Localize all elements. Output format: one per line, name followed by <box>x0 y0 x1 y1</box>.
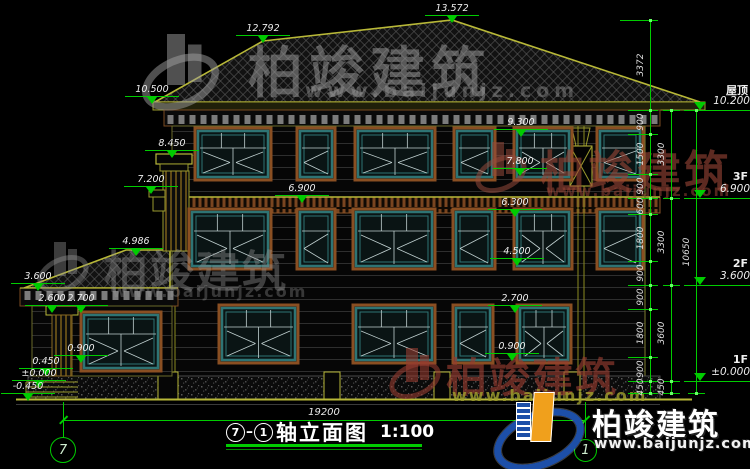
floor-level-line <box>684 110 750 111</box>
dimension-value: 3300 <box>657 220 667 264</box>
elevation-marker-triangle-icon <box>510 210 520 217</box>
elevation-marker: 7.200 <box>120 175 182 194</box>
elevation-marker-triangle-icon <box>23 394 33 401</box>
drawing-title: 7 – 1 轴立面图 1:100 <box>226 419 434 445</box>
dim-tick-dot <box>649 213 652 216</box>
elevation-marker-triangle-icon <box>510 306 520 313</box>
brand-logo: 柏竣建筑 www.baijunjz.com <box>490 388 750 468</box>
dimension-value: 3600 <box>657 311 667 355</box>
dim-tick-dot <box>649 173 652 176</box>
elevation-marker: 10.500 <box>121 85 183 104</box>
title-axis-start-bubble: 7 <box>226 423 245 442</box>
elevation-marker-triangle-icon <box>147 97 157 104</box>
elevation-marker-triangle-icon <box>447 16 457 23</box>
elevation-value: 8.450 <box>141 139 203 149</box>
elevation-marker-triangle-icon <box>76 306 86 313</box>
title-underline <box>226 444 422 447</box>
elevation-value: -0.450 <box>0 382 59 392</box>
dim-tick-dot <box>649 133 652 136</box>
dim-tick-dot <box>649 284 652 287</box>
elevation-value: 0.900 <box>481 342 543 352</box>
dim-tick-dot <box>649 19 652 22</box>
dim-tick-dot <box>649 109 652 112</box>
elevation-value: 0.450 <box>15 357 77 367</box>
logo-building-icon <box>530 392 554 442</box>
elevation-value: 10.500 <box>121 85 183 95</box>
elevation-marker: 4.500 <box>486 247 548 266</box>
dimension-value: 10650 <box>682 230 692 274</box>
elevation-value: 9.300 <box>490 118 552 128</box>
dim-line-inner <box>650 20 651 393</box>
elevation-marker-triangle-icon <box>512 259 522 266</box>
elevation-marker-triangle-icon <box>515 169 525 176</box>
elevation-value: 13.572 <box>421 4 483 14</box>
elevation-value: ±0.000 <box>8 369 70 379</box>
elevation-value: 3.600 <box>7 272 69 282</box>
elevation-marker-triangle-icon <box>516 130 526 137</box>
elevation-marker-triangle-icon <box>146 187 156 194</box>
cad-elevation-drawing: 柏竣建筑 www.baijunjz.com 柏竣建筑 www.baijunjz.… <box>0 0 750 469</box>
dim-tick-dot <box>649 356 652 359</box>
elevation-marker-triangle-icon <box>167 151 177 158</box>
dim-line-middle <box>671 110 672 393</box>
floor-name: 3F <box>700 170 748 183</box>
title-scale: 1:100 <box>380 422 434 442</box>
floor-elevation: ±0.000 <box>696 366 750 378</box>
elevation-value: 7.800 <box>489 157 551 167</box>
floor-level-line <box>684 381 750 382</box>
elevation-value: 4.500 <box>486 247 548 257</box>
dim-tick-dot <box>670 284 673 287</box>
dimension-value: 3372 <box>636 43 646 87</box>
elevation-value: 12.792 <box>232 24 294 34</box>
floor-level-line <box>684 285 750 286</box>
title-text: 轴立面图 <box>276 417 368 447</box>
elevation-value: 2.700 <box>50 294 112 304</box>
floor-name: 2F <box>700 257 748 270</box>
title-underline <box>226 449 422 450</box>
elevation-marker: 2.700 <box>484 294 546 313</box>
title-dash: – <box>246 424 253 440</box>
elevation-value: 7.200 <box>120 175 182 185</box>
floor-level-line <box>684 198 750 199</box>
elevation-marker-triangle-icon <box>258 36 268 43</box>
elevation-marker-triangle-icon <box>297 196 307 203</box>
floor-elevation: 6.900 <box>696 183 750 195</box>
dim-tick-dot <box>670 380 673 383</box>
elevation-value: 6.900 <box>271 184 333 194</box>
dim-tick-dot <box>670 197 673 200</box>
dim-tick-dot <box>649 308 652 311</box>
elevation-marker-triangle-icon <box>131 249 141 256</box>
dim-tick-dot <box>649 380 652 383</box>
elevation-value: 6.300 <box>484 198 546 208</box>
elevation-marker-triangle-icon <box>33 284 43 291</box>
elevation-value: 2.700 <box>484 294 546 304</box>
elevation-marker: 6.900 <box>271 184 333 203</box>
elevation-value: 0.900 <box>50 344 112 354</box>
dim-tick <box>620 20 658 21</box>
logo-building-icon <box>516 402 531 440</box>
floor-name: 1F <box>700 353 748 366</box>
dim-line-outer <box>696 110 697 393</box>
dim-tick-dot <box>649 197 652 200</box>
elevation-marker: 2.700 <box>50 294 112 313</box>
elevation-marker: 7.800 <box>489 157 551 176</box>
brand-website: www.baijunjz.com <box>594 436 750 452</box>
dimension-value: 3300 <box>657 132 667 176</box>
elevation-marker: 12.792 <box>232 24 294 43</box>
elevation-marker-triangle-icon <box>76 356 86 363</box>
elevation-marker: 0.900 <box>481 342 543 361</box>
axis-bubble-7: 7 <box>50 437 76 463</box>
floor-elevation: 10.200 <box>696 95 750 107</box>
elevation-value: 4.986 <box>105 237 167 247</box>
elevation-marker-triangle-icon <box>507 354 517 361</box>
dim-tick-dot <box>649 260 652 263</box>
elevation-marker: 6.300 <box>484 198 546 217</box>
elevation-marker: 9.300 <box>490 118 552 137</box>
title-axis-end-bubble: 1 <box>254 423 273 442</box>
elevation-marker: 4.986 <box>105 237 167 256</box>
dim-tick-dot <box>670 109 673 112</box>
elevation-marker: 3.600 <box>7 272 69 291</box>
elevation-marker: 13.572 <box>421 4 483 23</box>
elevation-marker: 8.450 <box>141 139 203 158</box>
elevation-marker: -0.450 <box>0 382 59 401</box>
floor-elevation: 3.600 <box>696 270 750 282</box>
